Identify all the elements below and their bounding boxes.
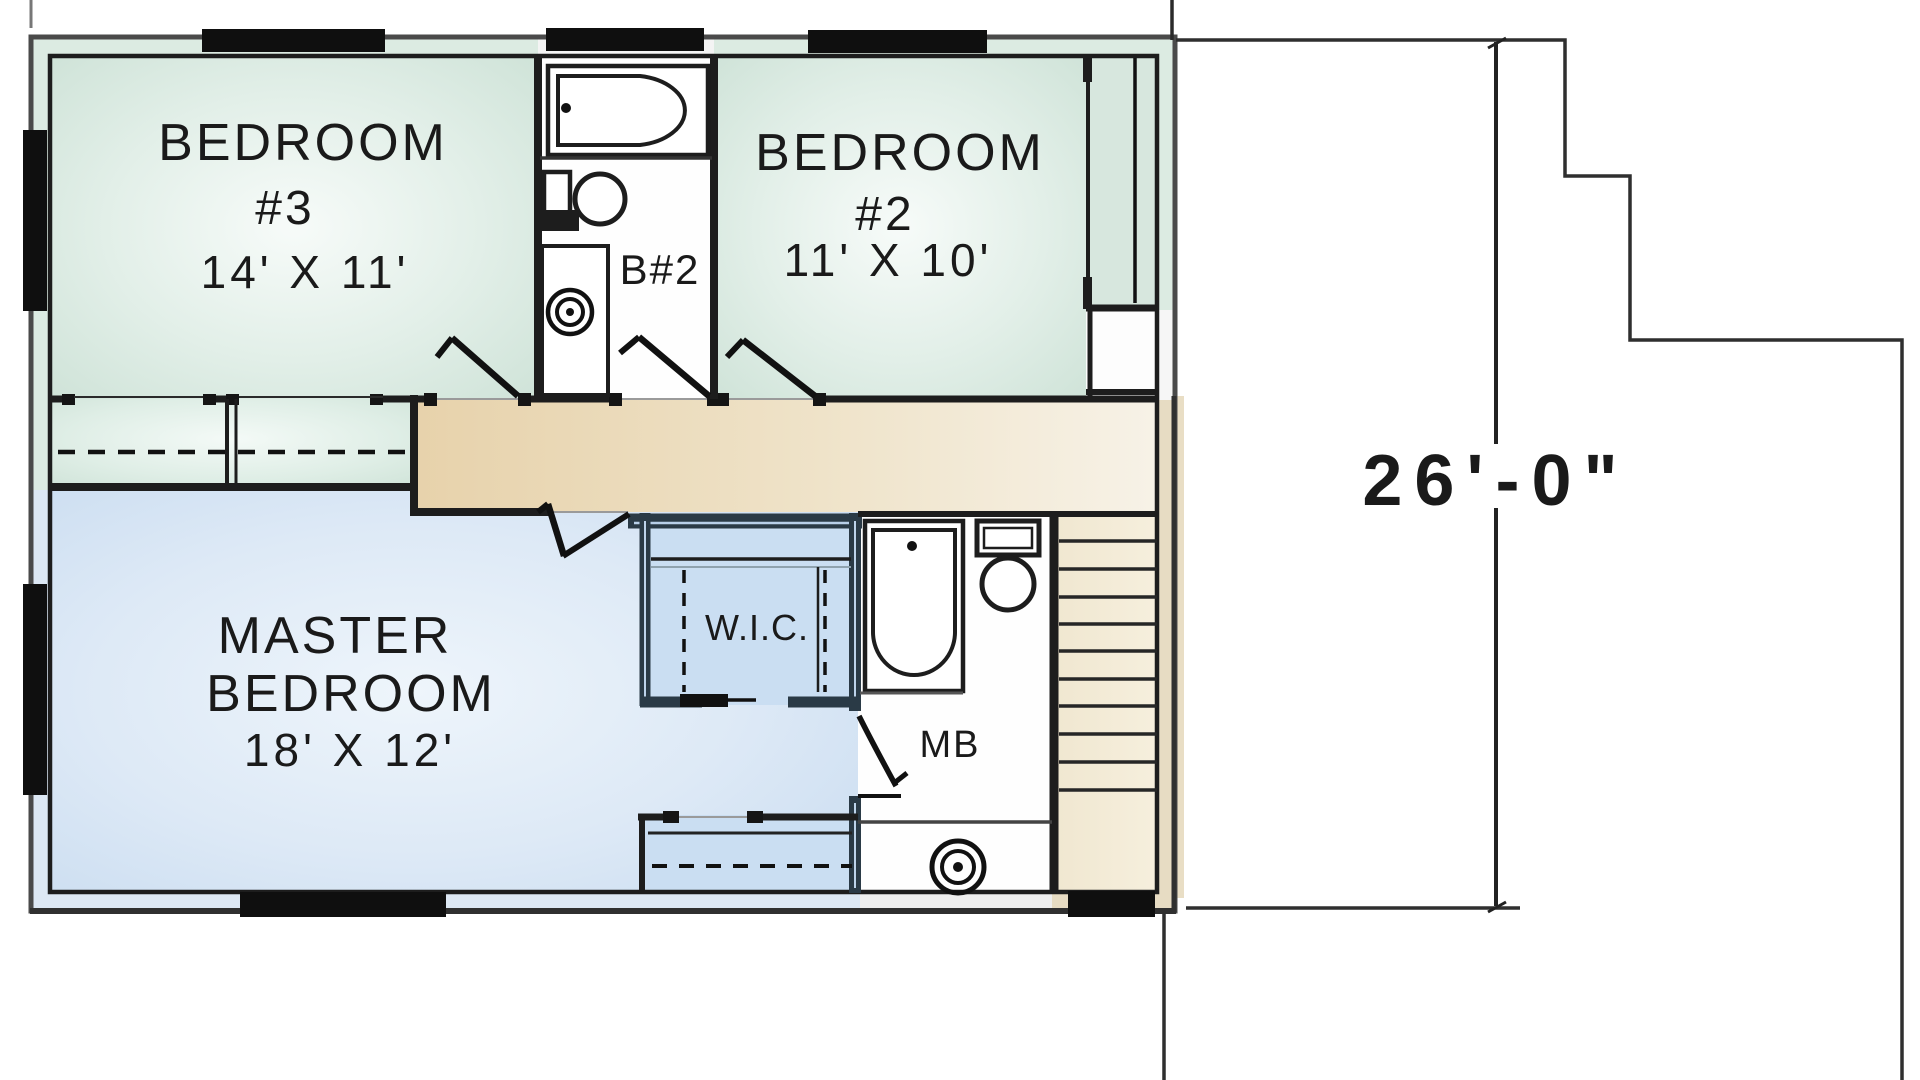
svg-text:26'-0": 26'-0" xyxy=(1362,441,1629,521)
svg-text:BEDROOM: BEDROOM xyxy=(755,124,1045,182)
svg-text:11' X 10': 11' X 10' xyxy=(784,234,993,286)
svg-text:14' X 11': 14' X 11' xyxy=(201,246,410,298)
svg-text:#3: #3 xyxy=(255,182,314,235)
svg-text:MASTER: MASTER xyxy=(218,607,453,665)
svg-text:MB: MB xyxy=(920,724,981,766)
svg-text:W.I.C.: W.I.C. xyxy=(705,607,809,648)
svg-text:B#2: B#2 xyxy=(620,246,701,293)
svg-text:18' X 12': 18' X 12' xyxy=(244,724,456,776)
svg-text:BEDROOM: BEDROOM xyxy=(206,665,496,723)
svg-text:BEDROOM: BEDROOM xyxy=(158,114,448,172)
